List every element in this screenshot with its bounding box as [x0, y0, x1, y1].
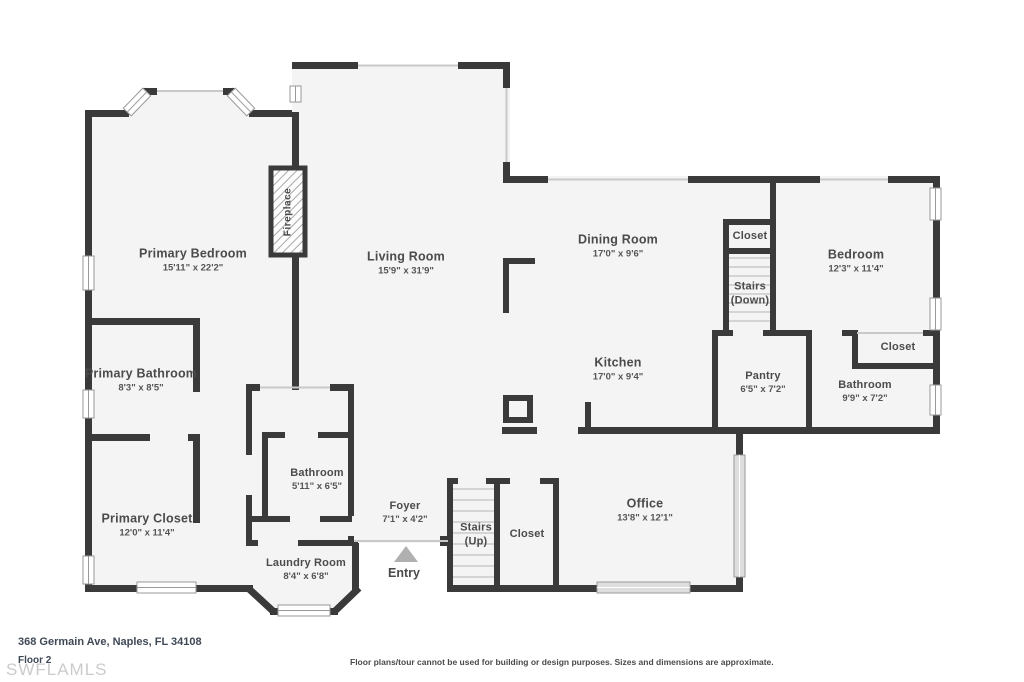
address-text: 368 Germain Ave, Naples, FL 34108	[18, 636, 202, 648]
room-label-kitchen: Kitchen 17'0" x 9'4"	[593, 355, 644, 383]
room-label-primary-bathroom: Primary Bathroom 8'3" x 8'5"	[85, 366, 197, 394]
room-label-bathroom-small: Bathroom 5'11" x 6'5"	[290, 467, 344, 493]
entry-arrow-icon	[394, 546, 418, 562]
floor-plan-drawing	[0, 0, 1024, 682]
room-label-stairs-down: Stairs (Down)	[731, 280, 769, 308]
room-label-foyer: Foyer 7'1" x 4'2"	[382, 500, 427, 526]
room-label-office: Office 13'8" x 12'1"	[617, 496, 673, 524]
entry-label: Entry	[388, 566, 420, 580]
room-label-living-room: Living Room 15'9" x 31'9"	[367, 249, 445, 277]
watermark-text: SWFLAMLS	[6, 660, 108, 680]
disclaimer-text: Floor plans/tour cannot be used for buil…	[350, 657, 774, 667]
room-label-laundry-room: Laundry Room 8'4" x 6'8"	[266, 557, 346, 583]
room-label-closet-bathroom: Closet	[881, 341, 916, 355]
room-label-stairs-up: Stairs (Up)	[460, 521, 492, 549]
room-label-bedroom: Bedroom 12'3" x 11'4"	[828, 247, 884, 275]
room-label-closet-foyer: Closet	[510, 528, 545, 542]
room-label-closet-stairs: Closet	[733, 230, 768, 244]
room-label-pantry: Pantry 6'5" x 7'2"	[740, 370, 785, 396]
fireplace-label: Fireplace	[283, 188, 294, 236]
room-label-dining-room: Dining Room 17'0" x 9'6"	[578, 232, 658, 260]
room-label-primary-bedroom: Primary Bedroom 15'11" x 22'2"	[139, 246, 247, 274]
room-label-bathroom: Bathroom 9'9" x 7'2"	[838, 379, 892, 405]
room-label-primary-closet: Primary Closet 12'0" x 11'4"	[101, 511, 192, 539]
floor-plan: Primary Bedroom 15'11" x 22'2" Living Ro…	[0, 0, 1024, 682]
